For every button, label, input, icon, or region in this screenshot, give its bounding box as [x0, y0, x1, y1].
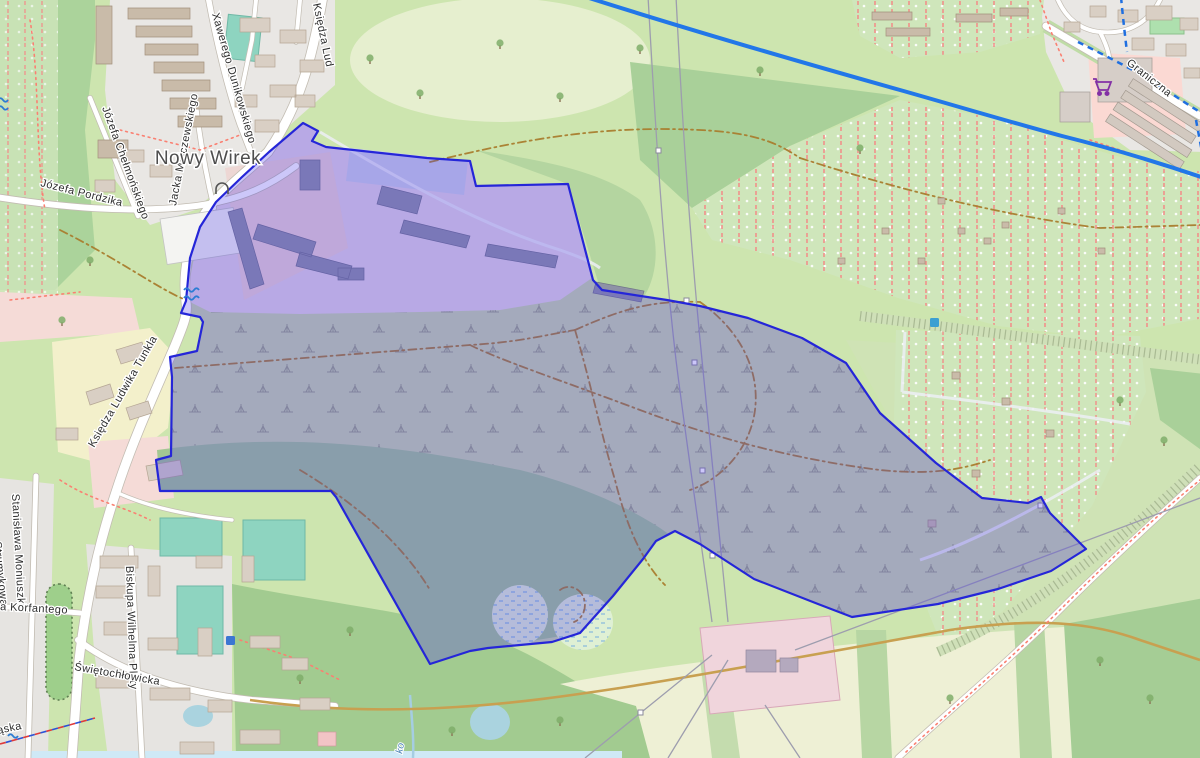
- building-pink: [318, 732, 336, 746]
- poi-marker-2: [930, 318, 939, 327]
- map-canvas[interactable]: Xawerego Dunikowskiego Jacka Malczewskie…: [0, 0, 1200, 758]
- allotments-left-paths: [0, 0, 58, 310]
- forest-bottomright: [1064, 598, 1200, 758]
- tree-avenue: [46, 584, 72, 700]
- poi-marker: [226, 636, 235, 645]
- tree-row-1: [856, 630, 892, 758]
- map-viewport[interactable]: Xawerego Dunikowskiego Jacka Malczewskie…: [0, 0, 1200, 758]
- place-label-nowy-wirek: Nowy Wirek: [155, 148, 261, 169]
- meadow: [350, 0, 650, 122]
